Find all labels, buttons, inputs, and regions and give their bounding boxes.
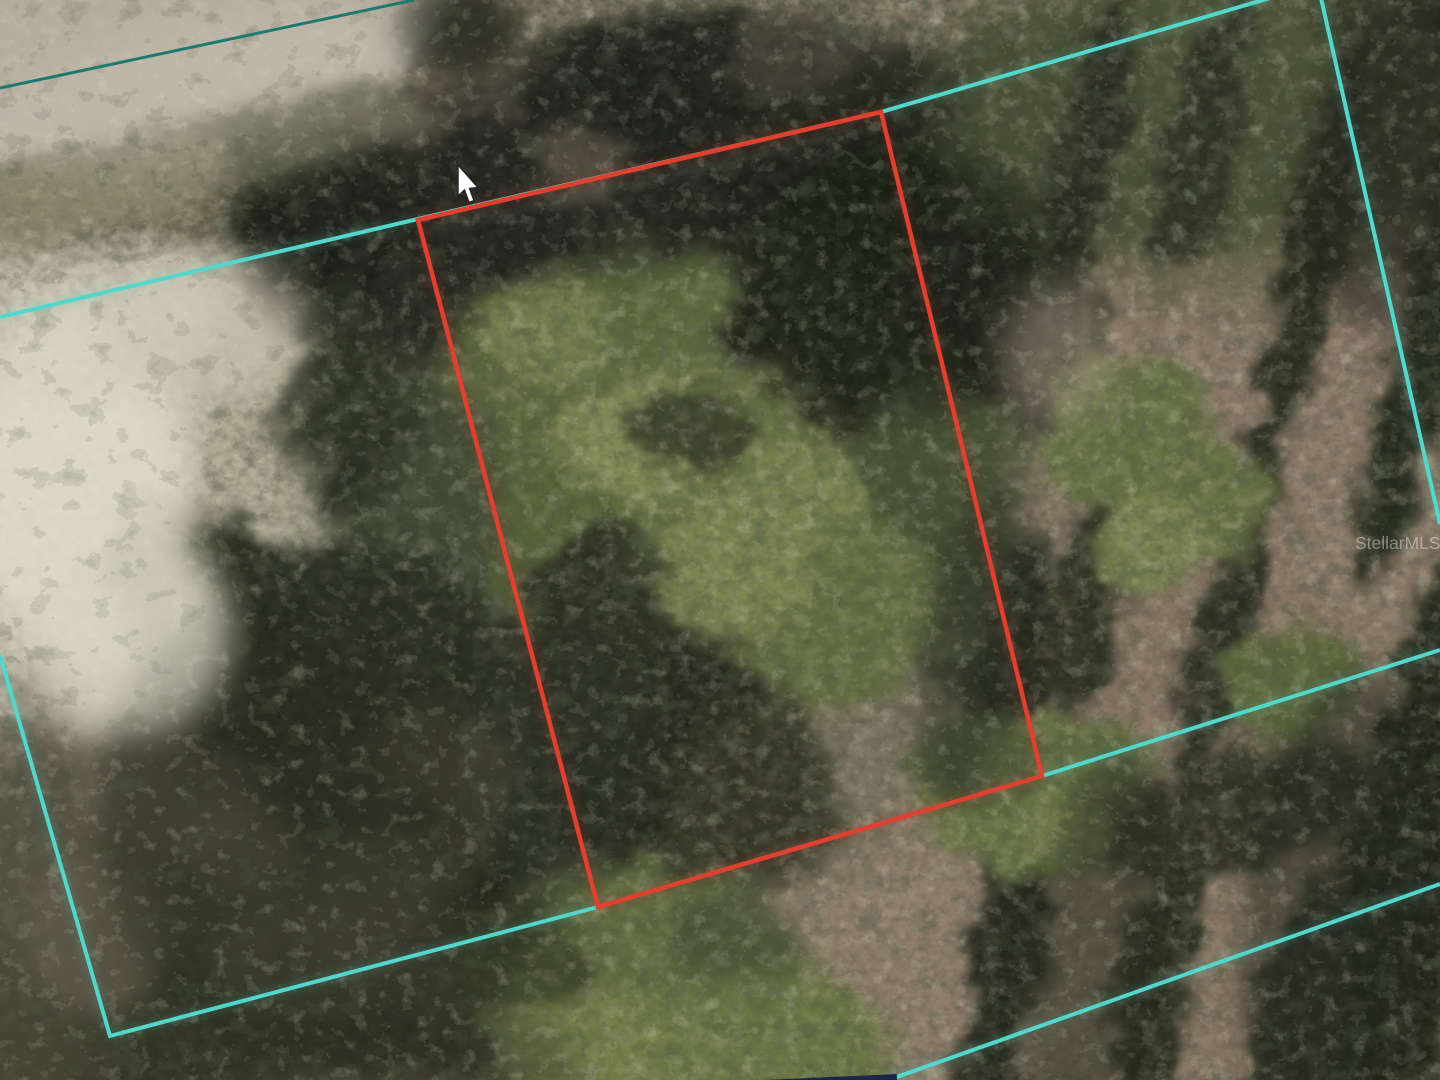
svg-text:StellarMLS: StellarMLS [1355,533,1440,553]
